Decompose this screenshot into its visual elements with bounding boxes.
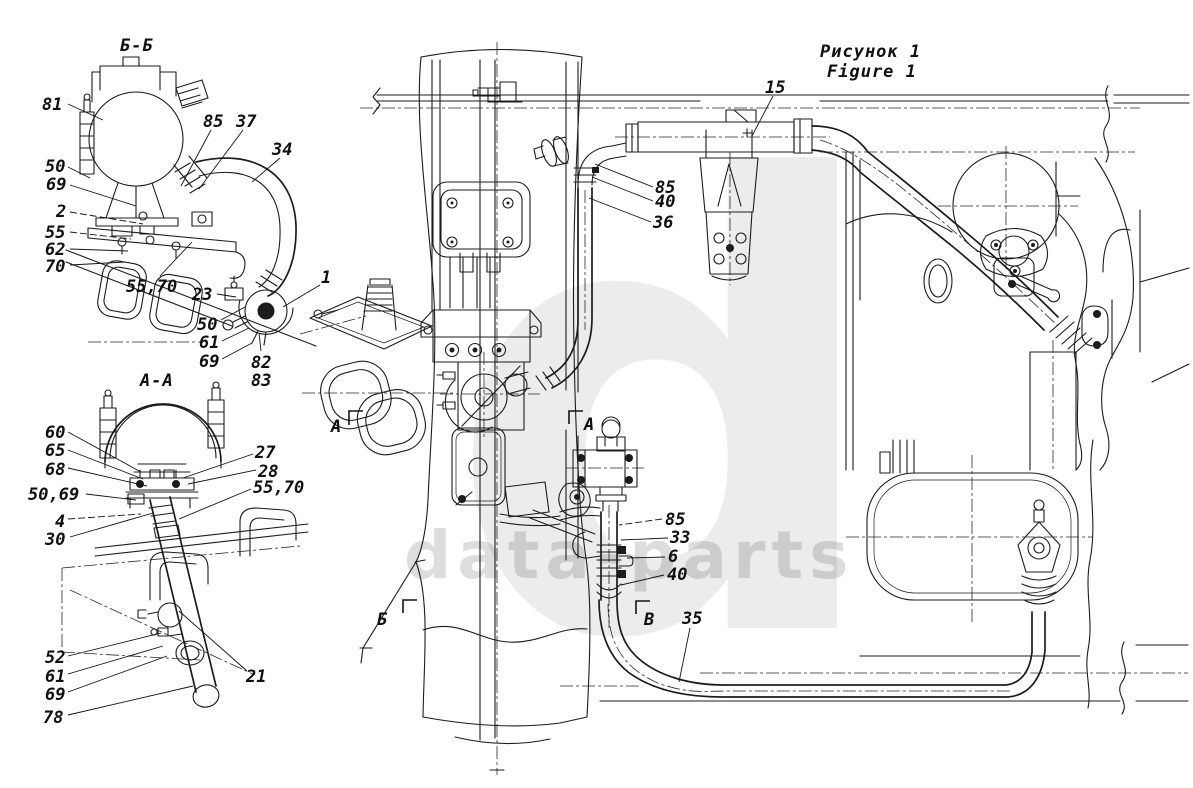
figure-page: d data-parts bbox=[0, 0, 1193, 788]
callout-55,70-10: 55,70 bbox=[126, 277, 177, 297]
view-marker-Б-2: Б bbox=[377, 610, 388, 630]
callout-6-38: 6 bbox=[668, 547, 678, 567]
mount-bracket-art bbox=[300, 279, 432, 460]
callout-70-9: 70 bbox=[45, 257, 65, 277]
callout-4-22: 4 bbox=[55, 512, 65, 532]
leader-68-20 bbox=[68, 468, 147, 486]
view-marker-В-3: В bbox=[643, 610, 654, 630]
leader-50-4 bbox=[68, 167, 90, 178]
callout-36-35: 36 bbox=[652, 213, 673, 233]
callout-81-0: 81 bbox=[42, 95, 62, 115]
figure-title-en: Figure 1 bbox=[827, 62, 917, 82]
leader-82-16 bbox=[259, 333, 261, 351]
callout-40-34: 40 bbox=[655, 192, 675, 212]
leader-78-30 bbox=[68, 686, 193, 715]
callout-61-28: 61 bbox=[45, 667, 65, 687]
callout-33-37: 33 bbox=[669, 528, 690, 548]
figure-title-ru: Рисунок 1 bbox=[820, 42, 921, 62]
callout-82-16: 82 bbox=[251, 353, 271, 373]
callout-23-11: 23 bbox=[191, 285, 212, 305]
leader-69-5 bbox=[70, 185, 136, 206]
leader-55,70-10 bbox=[160, 242, 192, 276]
callout-69-5: 69 bbox=[46, 175, 66, 195]
leader-61-28 bbox=[68, 646, 163, 674]
section-title-aa: А-А bbox=[139, 371, 174, 391]
view-marker-А-1: А bbox=[583, 415, 594, 435]
leader-27-24 bbox=[183, 454, 253, 478]
callout-30-23: 30 bbox=[44, 530, 65, 550]
callout-50,69-21: 50,69 bbox=[28, 485, 79, 505]
callout-1-12: 1 bbox=[321, 268, 331, 288]
callout-34-3: 34 bbox=[271, 140, 292, 160]
callout-85-36: 85 bbox=[665, 510, 685, 530]
section-title-bb: Б-Б bbox=[120, 36, 154, 56]
callout-40-39: 40 bbox=[667, 565, 687, 585]
section-bb-art bbox=[66, 57, 316, 346]
callout-50-4: 50 bbox=[45, 157, 65, 177]
view-marker-bracket-2 bbox=[403, 600, 417, 613]
callout-85-1: 85 bbox=[203, 112, 223, 132]
leader-69-29 bbox=[68, 656, 167, 692]
section-aa-art bbox=[62, 382, 308, 710]
callout-78-30: 78 bbox=[43, 708, 63, 728]
parts-diagram-canvas: d data-parts bbox=[0, 0, 1193, 788]
callout-2-6: 2 bbox=[55, 202, 66, 222]
callout-50-13: 50 bbox=[197, 315, 217, 335]
leader-1-12 bbox=[283, 285, 320, 307]
leader-28-25 bbox=[188, 470, 256, 484]
callout-21-31: 21 bbox=[245, 667, 266, 687]
callout-68-20: 68 bbox=[45, 460, 65, 480]
leader-34-3 bbox=[252, 158, 280, 182]
leader-69-15 bbox=[222, 343, 252, 359]
callout-61-14: 61 bbox=[199, 333, 219, 353]
leader-4-22 bbox=[68, 514, 141, 519]
callout-27-24: 27 bbox=[254, 443, 276, 463]
leader-52-27 bbox=[68, 633, 161, 656]
callout-83-17: 83 bbox=[251, 371, 271, 391]
callout-35-40: 35 bbox=[681, 609, 702, 629]
view-marker-А-0: А bbox=[330, 417, 341, 437]
callout-52-27: 52 bbox=[45, 648, 65, 668]
callout-37-2: 37 bbox=[235, 112, 257, 132]
callout-15-32: 15 bbox=[765, 78, 785, 98]
callout-60-18: 60 bbox=[45, 423, 65, 443]
callout-65-19: 65 bbox=[45, 441, 65, 461]
leader-30-23 bbox=[70, 513, 153, 537]
callout-55,70-26: 55,70 bbox=[253, 478, 304, 498]
watermark-letter: d bbox=[445, 54, 889, 775]
callout-69-29: 69 bbox=[45, 685, 65, 705]
leader-23-11 bbox=[217, 294, 236, 297]
callout-69-15: 69 bbox=[199, 352, 219, 372]
leader-62-8 bbox=[70, 249, 128, 251]
